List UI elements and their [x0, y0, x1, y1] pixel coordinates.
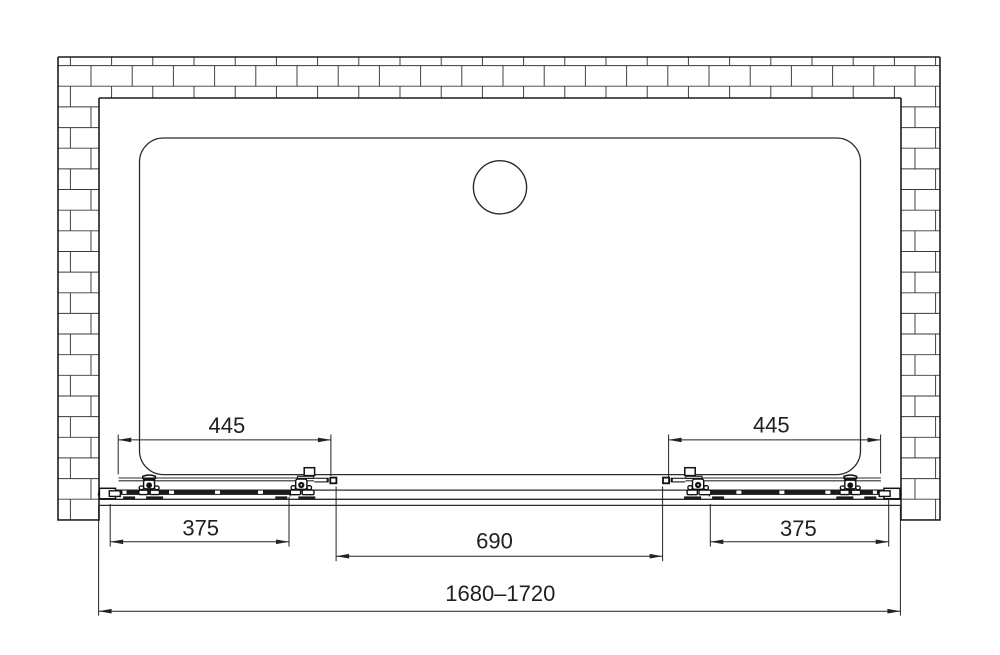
- svg-text:690: 690: [476, 529, 513, 554]
- svg-text:375: 375: [182, 515, 219, 540]
- svg-text:445: 445: [209, 413, 246, 438]
- svg-text:375: 375: [780, 516, 817, 541]
- svg-text:445: 445: [753, 413, 790, 438]
- svg-text:1680–1720: 1680–1720: [445, 581, 555, 606]
